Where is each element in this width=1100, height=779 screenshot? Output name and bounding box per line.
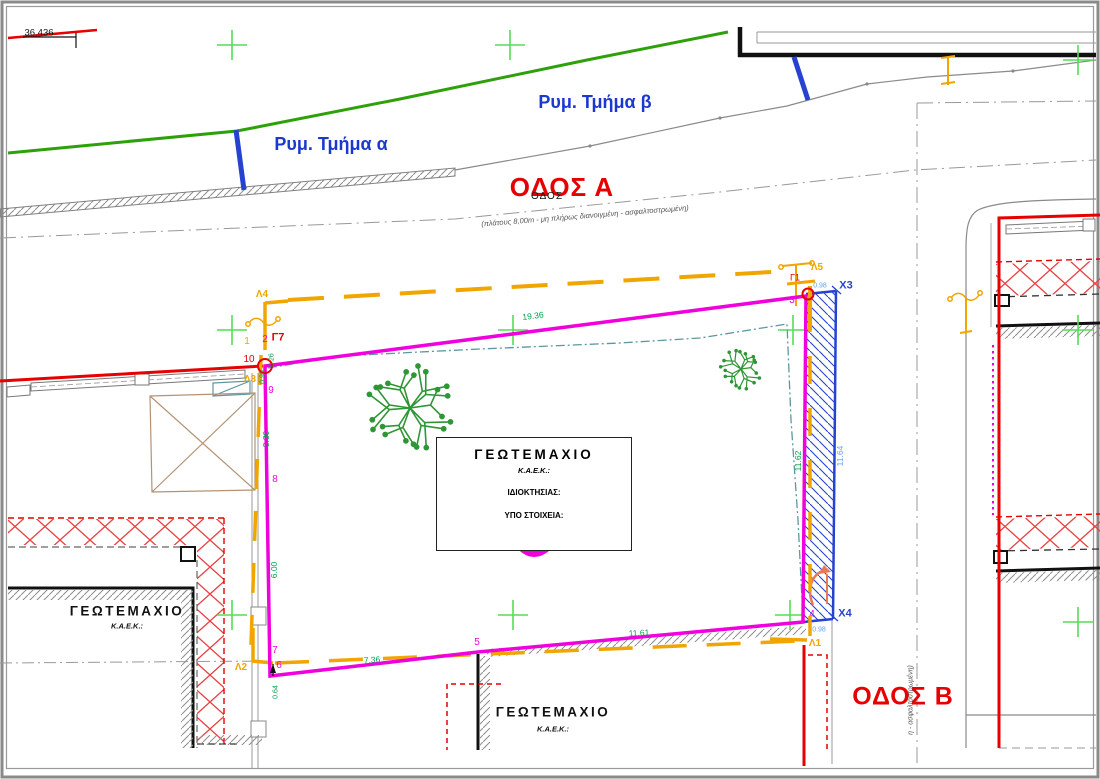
point-label-5: 5: [474, 638, 480, 648]
point-label-l5: Λ5: [811, 263, 823, 273]
neighbor-bottom-title: ΓΕΩΤΕΜΑΧΙΟ: [496, 705, 610, 719]
point-label-l2: Λ2: [235, 663, 247, 673]
point-label-6: 6: [276, 661, 282, 671]
point-label-3: 3: [789, 296, 795, 306]
point-label-7: 7: [272, 646, 278, 656]
street-sublabel-odos: ΟΔΟΣ: [531, 192, 563, 202]
dimension-left-upper: 3.30: [262, 431, 271, 448]
parcel-title: ΓΕΩΤΕΜΑΧΙΟ: [437, 447, 631, 462]
sheet-frame: [2, 2, 1098, 777]
dimension-bottom-right: 11.61: [628, 628, 649, 638]
parcel-elements-label: ΥΠΟ ΣΤΟΙΧΕΙΑ:: [437, 511, 631, 520]
dimension-x4-offset: 0.98: [812, 627, 826, 634]
point-label-g7: Γ7: [272, 333, 285, 344]
red-regulation-lines: [0, 30, 1100, 766]
parcel-info-box: ΓΕΩΤΕΜΑΧΙΟ Κ.Α.Ε.Κ.: ΙΔΙΟΚΤΗΣΙΑΣ: ΥΠΟ ΣΤ…: [436, 437, 632, 551]
elevation-value: 36.436: [24, 28, 53, 38]
dimension-corner-a: 0.96: [260, 370, 267, 384]
point-label-1: 1: [244, 337, 250, 347]
street-label-rym-tmima-b: Ρυμ. Τμήμα β: [538, 93, 651, 111]
street-label-odos-b: ΟΔΟΣ Β: [852, 685, 954, 710]
point-label-8: 8: [272, 475, 278, 485]
point-label-4: 4: [809, 610, 815, 620]
neighbor-left-kaek: Κ.Α.Ε.Κ.:: [111, 622, 143, 630]
dimension-bottom-corner: 0.64: [273, 685, 280, 699]
odos-b-width-note: η - ασφαλτοστρωμένη): [908, 665, 915, 735]
parcel-kaek-label: Κ.Α.Ε.Κ.:: [437, 466, 631, 475]
point-label-x4: X4: [838, 609, 851, 620]
point-label-x3: X3: [839, 281, 852, 292]
dimension-left-lower: 6.00: [270, 562, 279, 579]
point-label-2: 2: [262, 335, 268, 345]
street-label-rym-tmima-a: Ρυμ. Τμήμα α: [274, 135, 387, 153]
point-label-9: 9: [268, 386, 274, 396]
point-label-l4: Λ4: [256, 290, 268, 300]
topographic-plan-sheet: 36.436 Ρυμ. Τμήμα α Ρυμ. Τμήμα β ΟΔΟΣ Α …: [0, 0, 1100, 779]
point-label-l1: Λ1: [809, 639, 821, 649]
neighbor-bottom-kaek: Κ.Α.Ε.Κ.:: [537, 725, 569, 733]
dimension-corner-b: 0.26: [269, 353, 276, 367]
dimension-right-inner: 11.62: [794, 451, 803, 472]
building-walls: [8, 27, 1100, 750]
trees: [367, 349, 762, 451]
dimension-bottom-left: 7.36: [363, 655, 380, 665]
neighbor-left-title: ΓΕΩΤΕΜΑΧΙΟ: [70, 604, 184, 618]
site-plan-drawing: [0, 0, 1100, 779]
road-linework: [0, 60, 1096, 768]
point-label-10: 10: [243, 355, 254, 365]
point-label-g1: Γ1: [790, 274, 800, 283]
point-label-l3: Λ3: [244, 375, 256, 385]
parcel-owner-label: ΙΔΙΟΚΤΗΣΙΑΣ:: [437, 488, 631, 497]
dimension-right-outer: 11.64: [836, 446, 845, 467]
dimension-x3-offset: 0.98: [813, 283, 827, 290]
